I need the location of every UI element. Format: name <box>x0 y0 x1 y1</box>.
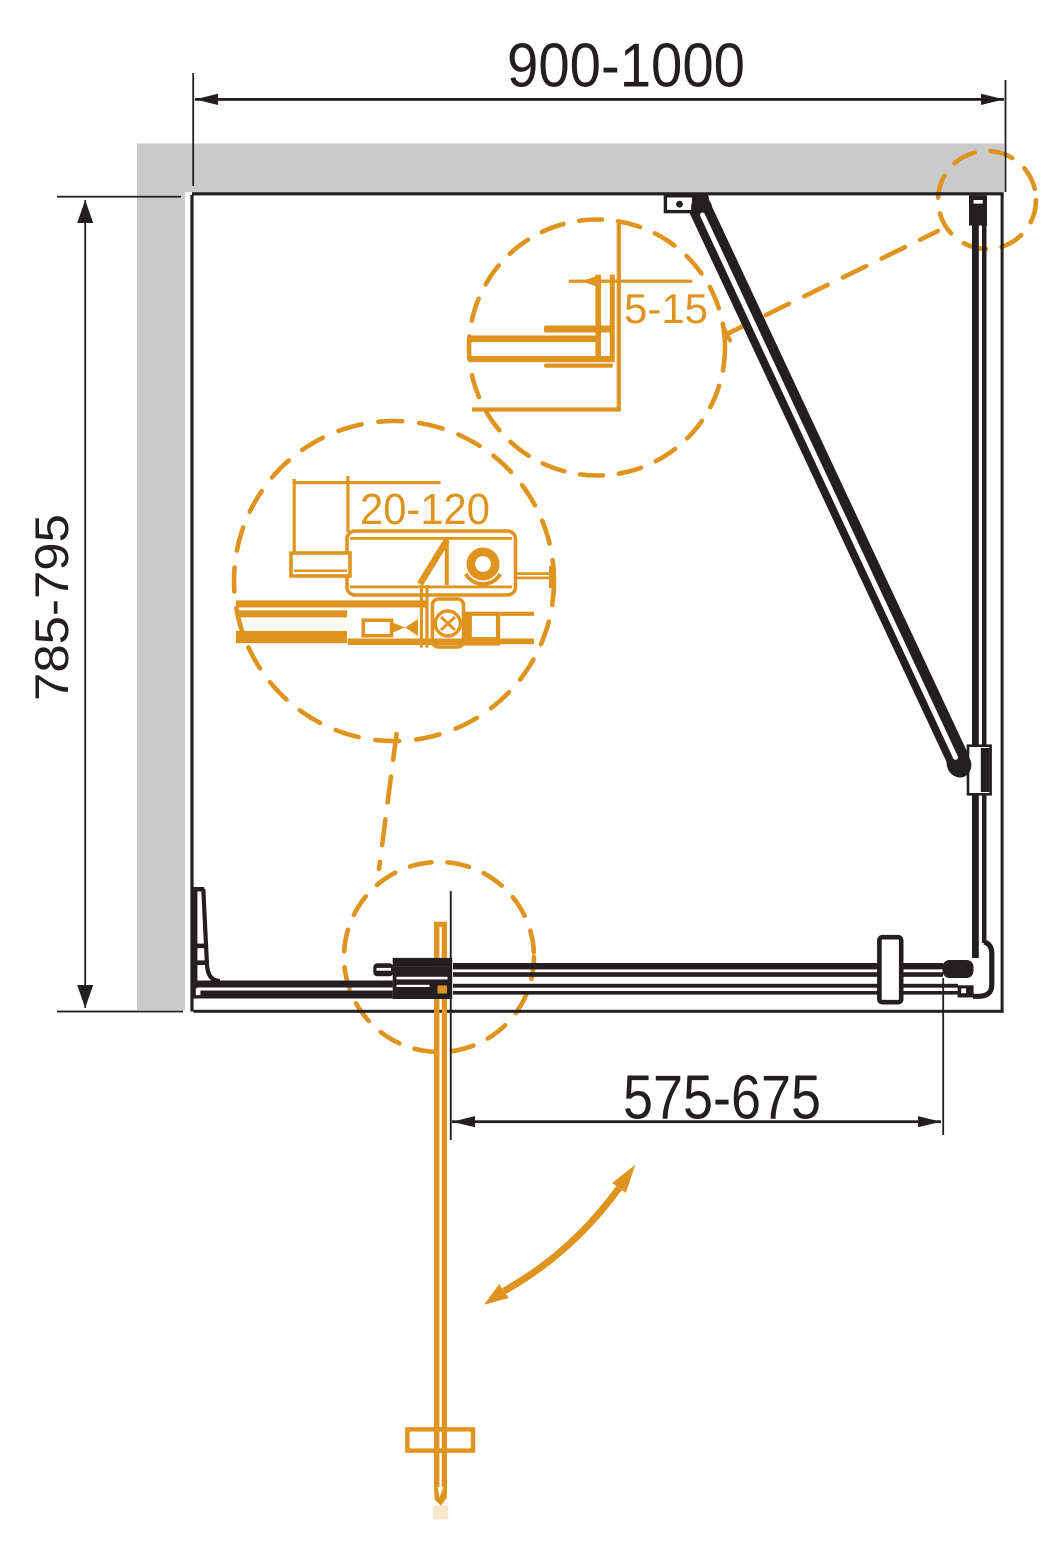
svg-text:5-15: 5-15 <box>624 285 708 332</box>
svg-text:900-1000: 900-1000 <box>507 31 745 100</box>
svg-text:785-795: 785-795 <box>25 514 78 701</box>
svg-text:575-675: 575-675 <box>623 1064 821 1133</box>
svg-text:20-120: 20-120 <box>360 486 490 534</box>
